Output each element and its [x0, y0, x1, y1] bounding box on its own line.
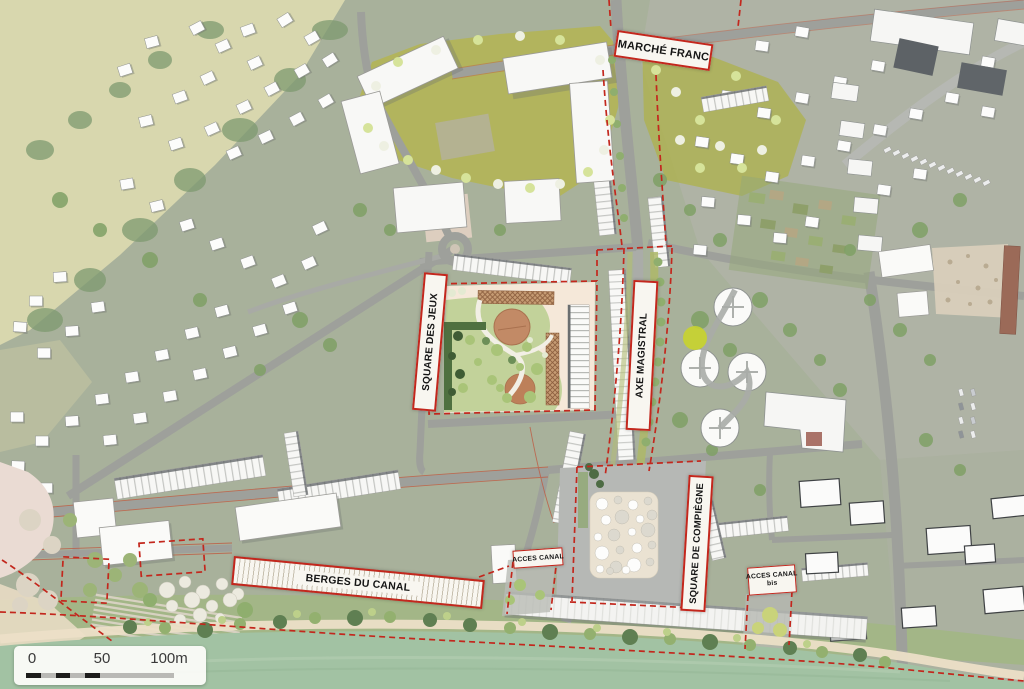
zone-label-text: ACCES CANAL: [512, 553, 564, 564]
allotment-gardens: [729, 176, 881, 290]
aerial-map-canvas: [0, 0, 1024, 689]
zone-label-text: SQUARE DES JEUX: [420, 293, 440, 392]
scale-bar: 0 50 100m: [14, 646, 206, 685]
scale-tick-50: 50: [94, 650, 111, 667]
zone-label-text: BERGES DU CANAL: [297, 570, 419, 596]
scale-tick-0: 0: [28, 650, 36, 667]
masterplan-aerial-view: MARCHÉ FRANC SQUARE DES JEUX AXE MAGISTR…: [0, 0, 1024, 689]
scale-tick-100m: 100m: [150, 650, 188, 667]
zone-label-text: MARCHÉ FRANC: [617, 38, 710, 64]
scale-bar-gauge: [26, 673, 174, 678]
zone-label-text: AXE MAGISTRAL: [634, 313, 649, 399]
zone-label-text: SQUARE DE COMPIÈGNE: [688, 483, 706, 604]
zone-label-text-line2: bis: [767, 580, 778, 589]
roundabout-center: [450, 244, 460, 254]
square-des-jeux-park: [444, 282, 595, 413]
zone-label-acces-canal: ACCES CANAL: [512, 547, 563, 568]
zone-label-acces-canal-bis: ACCES CANAL bis: [747, 564, 797, 595]
